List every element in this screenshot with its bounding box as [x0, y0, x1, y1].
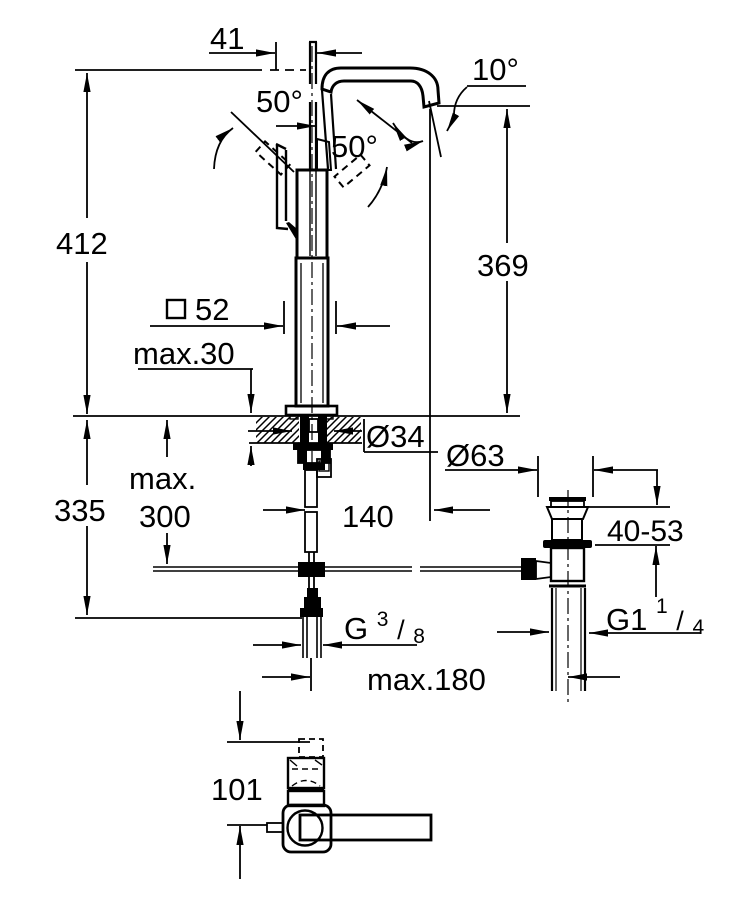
g38-denominator: 8 [413, 625, 425, 648]
g38-slash: / [397, 615, 405, 645]
square-symbol [167, 300, 185, 318]
g114-numerator: 1 [656, 595, 668, 618]
spout-tube [322, 68, 439, 107]
dim-dia63: Ø63 [446, 438, 505, 473]
dim-max300-word: max. [129, 461, 196, 496]
popup-rod [153, 567, 522, 571]
dim-max180: max.180 [367, 662, 486, 697]
dim-dia34: Ø34 [366, 419, 425, 454]
angle-50-left: 50° [256, 84, 303, 119]
technical-drawing-page: 41 50° 50° 10° 412 369 52 max.30 max. 30… [0, 0, 751, 900]
joystick-lever-stick [309, 42, 317, 256]
g114-slash: / [676, 606, 684, 636]
dim-41: 41 [210, 21, 244, 56]
dim-101: 101 [211, 772, 263, 807]
drain-assembly [521, 490, 592, 702]
thread-g38: G 3 / 8 [344, 598, 425, 648]
faucet-technical-drawing: 41 50° 50° 10° 412 369 52 max.30 max. 30… [0, 0, 751, 900]
dim-369: 369 [477, 248, 529, 283]
g114-denominator: 4 [692, 616, 704, 639]
g38-numerator: 3 [377, 608, 389, 631]
supply-connection [293, 443, 333, 658]
angle-10: 10° [472, 52, 519, 87]
dim-max300-value: 300 [139, 499, 191, 534]
front-view [267, 739, 431, 852]
g114-main: G1 [606, 602, 647, 637]
dim-335: 335 [54, 493, 106, 528]
dim-40-53: 40-53 [607, 515, 684, 548]
dimension-labels: 41 50° 50° 10° 412 369 52 max.30 max. 30… [54, 21, 704, 807]
angle-50-right: 50° [331, 129, 378, 164]
dim-max30: max.30 [133, 336, 235, 371]
dim-412: 412 [56, 226, 108, 261]
dim-140: 140 [342, 499, 394, 534]
g38-main: G [344, 611, 368, 646]
aerator-nub [267, 823, 283, 832]
dim-square-52: 52 [195, 292, 229, 327]
